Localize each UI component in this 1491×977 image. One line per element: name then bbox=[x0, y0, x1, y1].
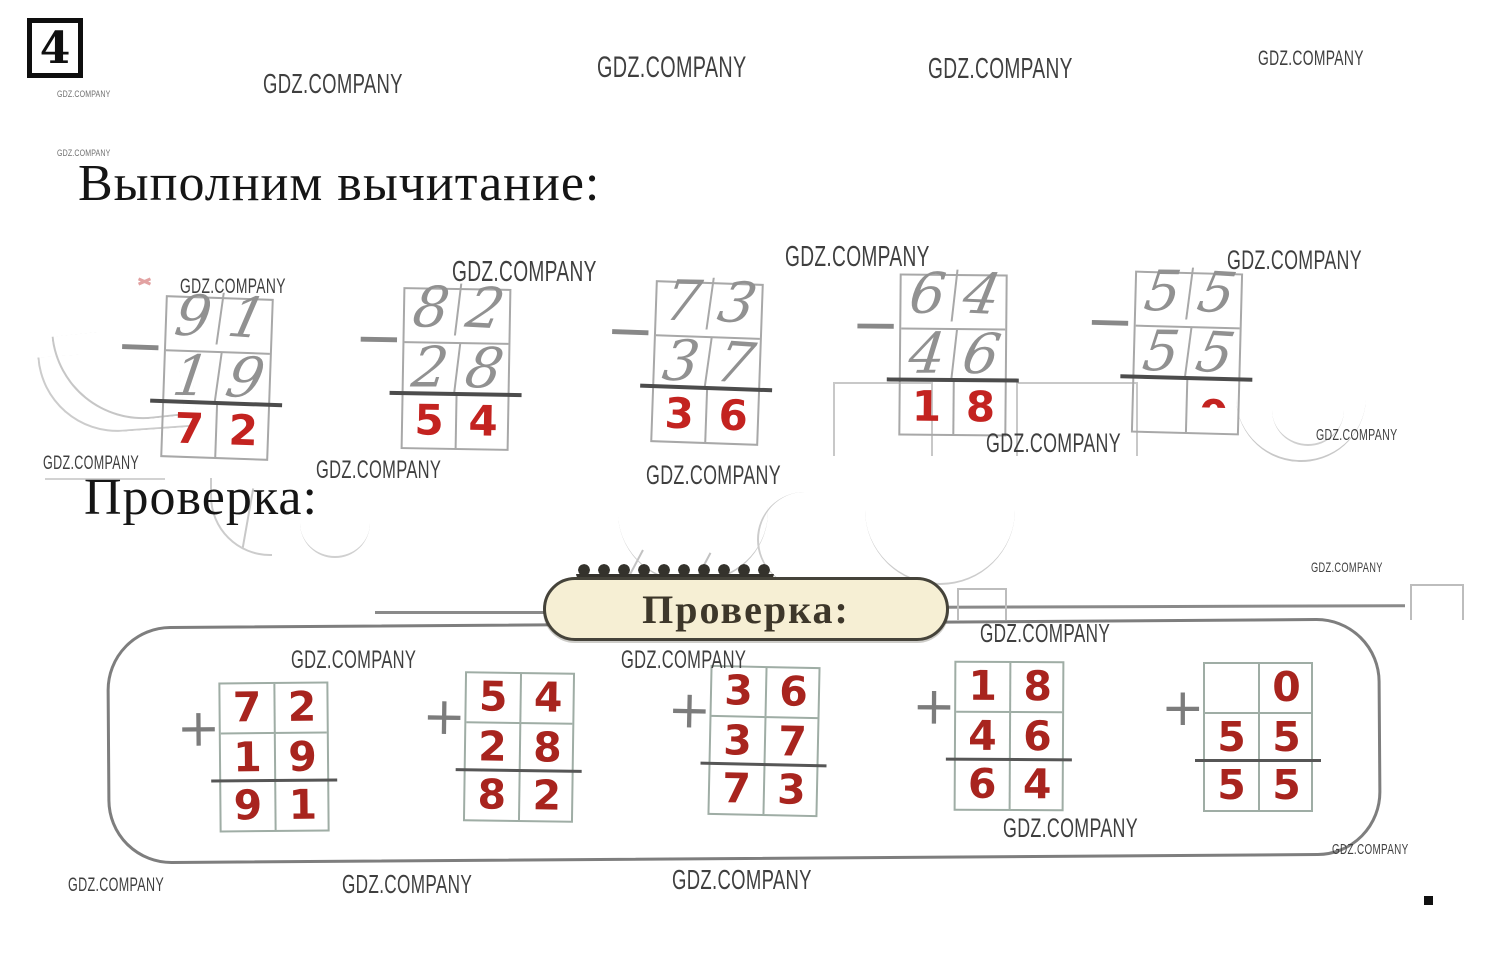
watermark: GDZ.COMPANY bbox=[1332, 842, 1409, 857]
check-problem: + 5 4 2 8 8 2 bbox=[463, 671, 575, 823]
watermark: GDZ.COMPANY bbox=[1227, 247, 1362, 274]
digit-cell: 8 bbox=[954, 382, 1006, 434]
watermark: GDZ.COMPANY bbox=[68, 876, 164, 895]
plus-sign: + bbox=[1161, 682, 1205, 734]
watermark: GDZ.COMPANY bbox=[980, 620, 1110, 646]
addend2-row: 1 9 bbox=[221, 734, 327, 783]
digit-cell: 7 bbox=[703, 337, 766, 392]
digit-cell: 8 bbox=[1011, 663, 1064, 711]
period-dot bbox=[1424, 896, 1433, 905]
watermark: GDZ.COMPANY bbox=[986, 430, 1121, 457]
subtrahend-row: 5 5 bbox=[1134, 327, 1239, 382]
check-badge: Проверка: bbox=[543, 577, 949, 641]
digit-cell: 4 bbox=[956, 713, 1011, 761]
digit-cell: 4 bbox=[1011, 761, 1064, 809]
digit-cell: 4 bbox=[457, 396, 510, 449]
problem-number-box: 4 bbox=[27, 18, 83, 78]
subtraction-heading: Выполним вычитание: bbox=[78, 158, 600, 210]
digit-cell: 5 bbox=[403, 395, 458, 448]
digit-cell: 9 bbox=[213, 352, 276, 407]
watermark: GDZ.COMPANY bbox=[43, 454, 139, 473]
digit-cell: 5 bbox=[1133, 267, 1194, 319]
sum-row: 6 4 bbox=[956, 761, 1062, 810]
result-row: 0 bbox=[1133, 379, 1238, 434]
sum-line bbox=[1195, 759, 1321, 762]
watermark: GDZ.COMPANY bbox=[180, 276, 286, 297]
addend1-row: 7 2 bbox=[220, 684, 326, 735]
column-grid: 7 3 3 7 3 6 bbox=[650, 280, 764, 446]
check-problem: + 0 5 5 5 5 bbox=[1203, 662, 1313, 812]
digit-cell: 1 bbox=[161, 352, 222, 405]
digit-cell: 5 bbox=[1132, 327, 1193, 379]
column-grid: 6 4 4 6 1 8 bbox=[898, 274, 1007, 437]
column-grid: 7 2 1 9 9 1 bbox=[218, 682, 329, 833]
subtrahend-row: 3 7 bbox=[654, 336, 760, 392]
check-badge-label: Проверка: bbox=[642, 586, 850, 633]
addend2-row: 4 6 bbox=[956, 713, 1062, 762]
digit-cell: 3 bbox=[764, 766, 818, 815]
column-grid: 1 8 4 6 6 4 bbox=[954, 661, 1065, 812]
addend1-row: 0 bbox=[1205, 664, 1311, 714]
digit-cell: 6 bbox=[950, 329, 1012, 383]
digit-cell: 2 bbox=[454, 283, 517, 338]
watermark: GDZ.COMPANY bbox=[57, 149, 110, 158]
digit-cell: 2 bbox=[401, 344, 461, 396]
ghost-artifact bbox=[1410, 584, 1464, 620]
plus-sign: + bbox=[422, 691, 466, 744]
watermark: GDZ.COMPANY bbox=[1311, 560, 1383, 574]
subtrahend-row: 4 6 bbox=[901, 330, 1005, 383]
workbook-page: 4 Выполним вычитание: Проверка: GDZ.COMP… bbox=[0, 0, 1491, 977]
digit-cell: 0 bbox=[1260, 664, 1313, 712]
sum-row: 9 1 bbox=[221, 782, 327, 831]
digit-cell: 7 bbox=[162, 403, 218, 457]
ghost-artifact bbox=[865, 498, 1015, 585]
subtrahend-row: 1 9 bbox=[164, 351, 270, 407]
column-grid: 5 5 5 5 0 bbox=[1131, 271, 1243, 436]
subtraction-problem: − 7 3 3 7 3 6 bbox=[650, 280, 764, 446]
digit-cell: 3 bbox=[705, 277, 768, 332]
digit-cell: 1 bbox=[215, 292, 278, 347]
subtraction-problem: − 5 5 5 5 0 bbox=[1131, 271, 1243, 436]
watermark: GDZ.COMPANY bbox=[1316, 428, 1397, 444]
digit-cell: 6 bbox=[767, 668, 821, 717]
watermark: GDZ.COMPANY bbox=[672, 866, 812, 894]
digit-cell: 2 bbox=[216, 405, 270, 459]
result-row: 5 4 bbox=[403, 395, 508, 449]
digit-cell: 8 bbox=[453, 343, 516, 398]
addend2-row: 2 8 bbox=[466, 723, 573, 772]
column-grid: 5 4 2 8 8 2 bbox=[463, 671, 575, 823]
watermark: GDZ.COMPANY bbox=[263, 70, 403, 98]
digit-cell: 5 bbox=[1205, 762, 1260, 810]
watermark: GDZ.COMPANY bbox=[646, 462, 781, 489]
digit-cell: 3 bbox=[652, 388, 708, 442]
addend1-row: 5 4 bbox=[466, 673, 573, 724]
subtraction-problem: − 6 4 4 6 1 8 bbox=[898, 274, 1007, 437]
watermark: GDZ.COMPANY bbox=[316, 458, 441, 483]
minus-sign: − bbox=[354, 308, 404, 367]
digit-cell: 0 bbox=[1188, 390, 1240, 408]
digit-cell: 3 bbox=[651, 337, 712, 390]
watermark: GDZ.COMPANY bbox=[928, 55, 1073, 84]
check-heading: Проверка: bbox=[84, 472, 318, 524]
addend2-row: 5 5 bbox=[1205, 714, 1311, 762]
addend1-row: 3 6 bbox=[711, 667, 818, 719]
watermark: GDZ.COMPANY bbox=[452, 258, 597, 287]
digit-cell: 3 bbox=[710, 717, 766, 766]
digit-cell: 9 bbox=[221, 782, 276, 830]
digit-cell: 6 bbox=[706, 390, 760, 444]
digit-cell: 7 bbox=[765, 718, 819, 767]
digit-cell bbox=[1205, 664, 1260, 712]
digit-cell bbox=[1133, 379, 1188, 432]
digit-cell: 5 bbox=[466, 673, 522, 722]
digit-cell: 7 bbox=[220, 684, 275, 732]
digit-cell: 1 bbox=[900, 382, 954, 434]
watermark: GDZ.COMPANY bbox=[342, 871, 472, 897]
digit-cell: 7 bbox=[709, 765, 765, 814]
column-grid: 8 2 2 8 5 4 bbox=[401, 287, 512, 451]
minus-sign: − bbox=[115, 315, 166, 375]
sum-row: 5 5 bbox=[1205, 762, 1311, 810]
digit-cell: 4 bbox=[898, 330, 958, 382]
problem-number: 4 bbox=[40, 23, 71, 74]
digit-cell: 4 bbox=[950, 269, 1012, 323]
digit-cell: 5 bbox=[1205, 714, 1260, 762]
ghost-artifact bbox=[957, 588, 1007, 620]
watermark: GDZ.COMPANY bbox=[291, 648, 416, 673]
minus-sign: − bbox=[851, 295, 900, 353]
digit-cell: 3 bbox=[712, 667, 768, 716]
column-grid: 3 6 3 7 7 3 bbox=[707, 665, 820, 817]
ghost-artifact bbox=[1233, 365, 1368, 466]
check-problem: + 7 2 1 9 9 1 bbox=[218, 682, 329, 833]
watermark: GDZ.COMPANY bbox=[785, 243, 930, 272]
digit-cell: 8 bbox=[465, 771, 521, 820]
result-row: 1 8 bbox=[900, 382, 1004, 435]
check-problem: + 3 6 3 7 7 3 bbox=[707, 665, 820, 817]
column-grid: 9 1 1 9 7 2 bbox=[160, 295, 274, 461]
digit-cell: 8 bbox=[402, 284, 462, 336]
minus-sign: − bbox=[605, 300, 656, 360]
digit-cell: 6 bbox=[898, 270, 958, 322]
digit-cell: 6 bbox=[1011, 713, 1064, 761]
digit-cell: 5 bbox=[1260, 714, 1313, 762]
digit-cell: 1 bbox=[221, 734, 276, 782]
digit-cell: 9 bbox=[163, 292, 224, 345]
subtraction-problem: − 8 2 2 8 5 4 bbox=[401, 287, 512, 451]
digit-cell: 7 bbox=[653, 277, 714, 330]
digit-cell: 2 bbox=[466, 723, 522, 772]
digit-cell: 5 bbox=[1183, 327, 1246, 382]
plus-sign: + bbox=[667, 684, 712, 737]
subtraction-problem: − 9 1 1 9 7 2 bbox=[160, 295, 274, 461]
digit-cell: 2 bbox=[520, 772, 574, 821]
watermark: GDZ.COMPANY bbox=[1003, 815, 1138, 842]
digit-cell: 8 bbox=[521, 724, 575, 773]
watermark: GDZ.COMPANY bbox=[621, 648, 746, 673]
digit-cell: 2 bbox=[275, 684, 328, 732]
plus-sign: + bbox=[177, 702, 221, 754]
watermark: GDZ.COMPANY bbox=[597, 53, 747, 83]
plus-sign: + bbox=[912, 680, 956, 732]
addend1-row: 1 8 bbox=[956, 663, 1062, 714]
badge-connector-line-left bbox=[375, 611, 550, 614]
sum-row: 8 2 bbox=[465, 771, 572, 820]
minus-sign: − bbox=[1085, 291, 1135, 350]
check-problem: + 1 8 4 6 6 4 bbox=[954, 661, 1065, 812]
badge-connector-line-right bbox=[940, 604, 1405, 609]
digit-cell: 4 bbox=[521, 674, 575, 723]
digit-cell: 1 bbox=[276, 782, 329, 830]
sum-row: 7 3 bbox=[709, 765, 816, 815]
digit-cell: 5 bbox=[1260, 762, 1313, 810]
watermark: GDZ.COMPANY bbox=[1258, 48, 1364, 69]
digit-cell: 6 bbox=[956, 761, 1011, 809]
digit-cell: 5 bbox=[1185, 267, 1248, 322]
sum-line bbox=[946, 758, 1072, 762]
subtrahend-row: 2 8 bbox=[404, 343, 509, 397]
watermark: GDZ.COMPANY bbox=[57, 90, 110, 99]
digit-cell: 1 bbox=[956, 663, 1011, 711]
column-grid: 0 5 5 5 5 bbox=[1203, 662, 1313, 812]
addend2-row: 3 7 bbox=[710, 717, 817, 767]
digit-cell: 9 bbox=[276, 734, 329, 782]
